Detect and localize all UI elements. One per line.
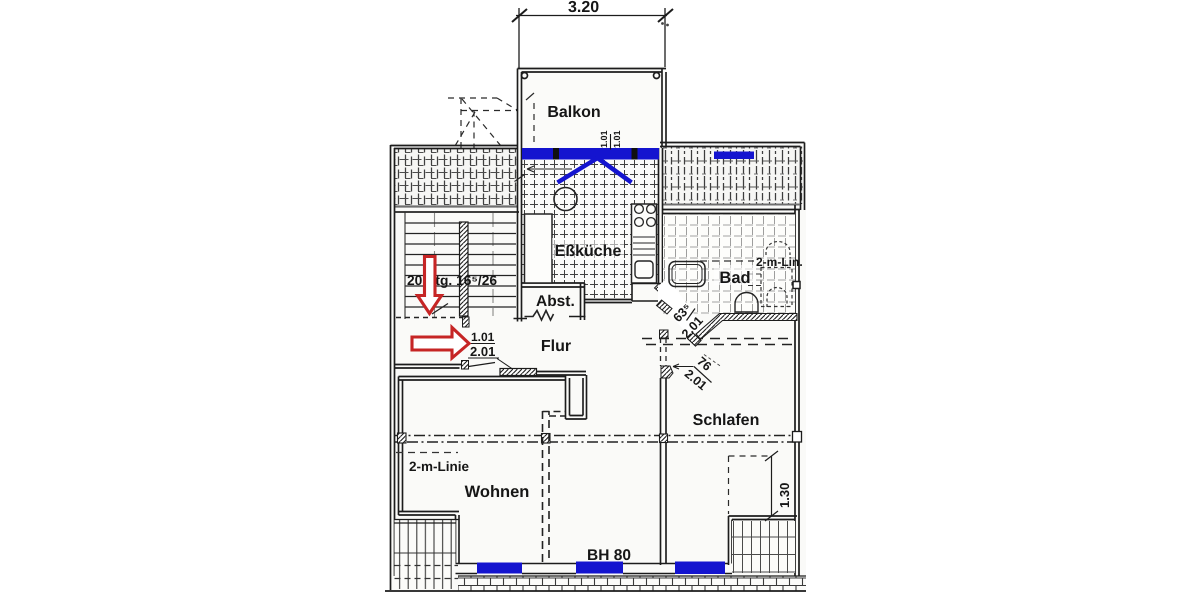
svg-text:BH 80: BH 80 [587,547,631,564]
svg-text:1.01: 1.01 [612,130,622,148]
svg-text:Balkon: Balkon [547,104,600,121]
svg-text:1.01: 1.01 [471,330,495,344]
svg-text:2-m-Linie: 2-m-Linie [409,459,469,474]
svg-text:Flur: Flur [541,338,571,355]
svg-text:3.20: 3.20 [568,0,599,16]
svg-text:20 Stg. 16⁵/26: 20 Stg. 16⁵/26 [407,273,497,288]
svg-text:2-m-Lin.: 2-m-Lin. [756,255,803,269]
svg-text:1.30: 1.30 [777,483,792,508]
svg-text:1.01: 1.01 [599,130,609,148]
svg-text:2.01: 2.01 [470,344,495,359]
svg-text:Schlafen: Schlafen [693,412,760,429]
svg-text:Abst.: Abst. [536,293,575,310]
svg-text:Wohnen: Wohnen [465,483,530,501]
svg-text:Eßküche: Eßküche [555,243,622,260]
svg-text:Bad: Bad [719,269,750,287]
